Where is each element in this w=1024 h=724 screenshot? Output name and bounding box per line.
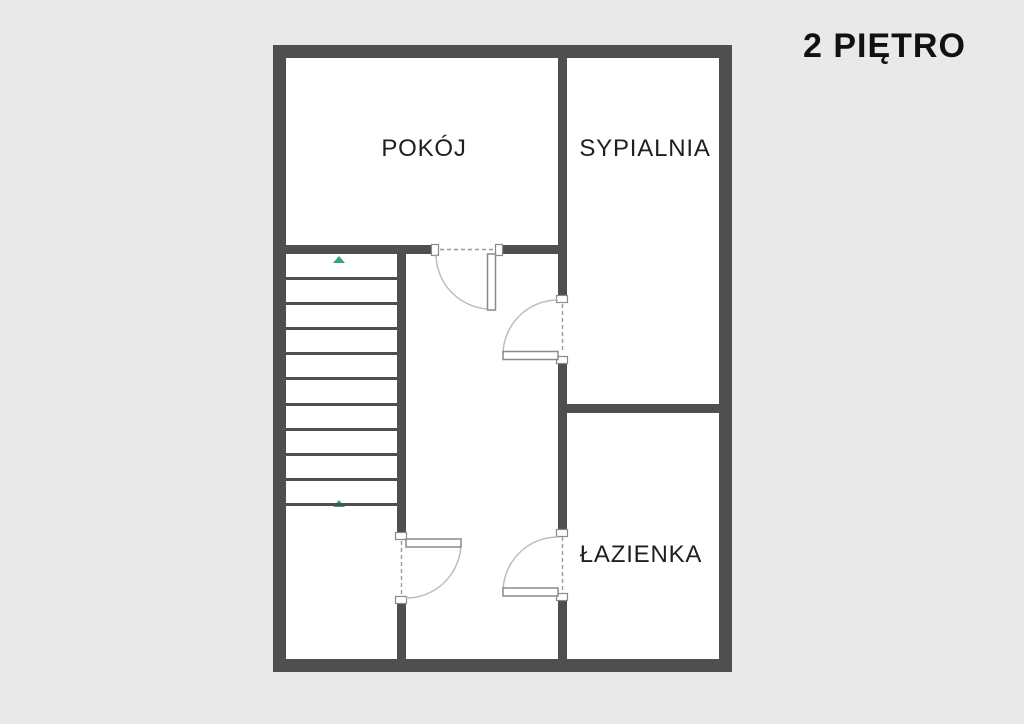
stairs-up-arrow-icon: [333, 256, 345, 263]
wall-stairs-right-lower: [397, 600, 406, 659]
room-label-sypialnia: SYPIALNIA: [579, 135, 710, 163]
door-swing-arc: [436, 254, 491, 309]
door-leaf: [503, 352, 558, 360]
door-leaf: [503, 588, 558, 596]
wall-center-vertical-lower: [558, 598, 567, 659]
stair-tread: [286, 377, 397, 380]
page-title: 2 PIĘTRO: [803, 27, 966, 66]
door-pokoj: [432, 245, 503, 311]
stair-tread: [286, 277, 397, 280]
door-lazienka: [503, 530, 568, 601]
room-label-lazienka: ŁAZIENKA: [580, 541, 702, 569]
stair-tread: [286, 327, 397, 330]
room-label-pokoj: POKÓJ: [381, 135, 466, 163]
staircase: [286, 254, 397, 659]
wall-center-vertical-upper: [558, 58, 567, 302]
stair-tread: [286, 403, 397, 406]
floor-plan-page: 2 PIĘTRO: [0, 0, 1024, 724]
door-sypialnia: [503, 296, 568, 364]
wall-center-vertical-middle: [558, 357, 567, 533]
door-swing-arc: [503, 300, 558, 355]
wall-pokoj-bottom-right: [496, 245, 567, 254]
wall-outer-left: [273, 45, 286, 672]
floor-plan: POKÓJ SYPIALNIA ŁAZIENKA: [273, 45, 732, 672]
stair-tread: [286, 453, 397, 456]
stair-tread: [286, 503, 397, 506]
door-swing-arc: [406, 543, 461, 598]
stair-tread: [286, 428, 397, 431]
wall-pokoj-bottom-left: [286, 245, 438, 254]
stair-tread: [286, 478, 397, 481]
stair-tread: [286, 302, 397, 305]
wall-outer-right: [719, 45, 732, 672]
wall-outer-top: [273, 45, 732, 58]
door-leaf: [488, 254, 496, 310]
stair-tread: [286, 352, 397, 355]
door-swing-arc: [503, 537, 558, 592]
wall-stairs-right-upper: [397, 245, 406, 537]
door-leaf: [406, 539, 461, 547]
wall-outer-bottom: [273, 659, 732, 672]
door-landing: [396, 533, 462, 604]
wall-sypialnia-bottom: [567, 404, 719, 413]
